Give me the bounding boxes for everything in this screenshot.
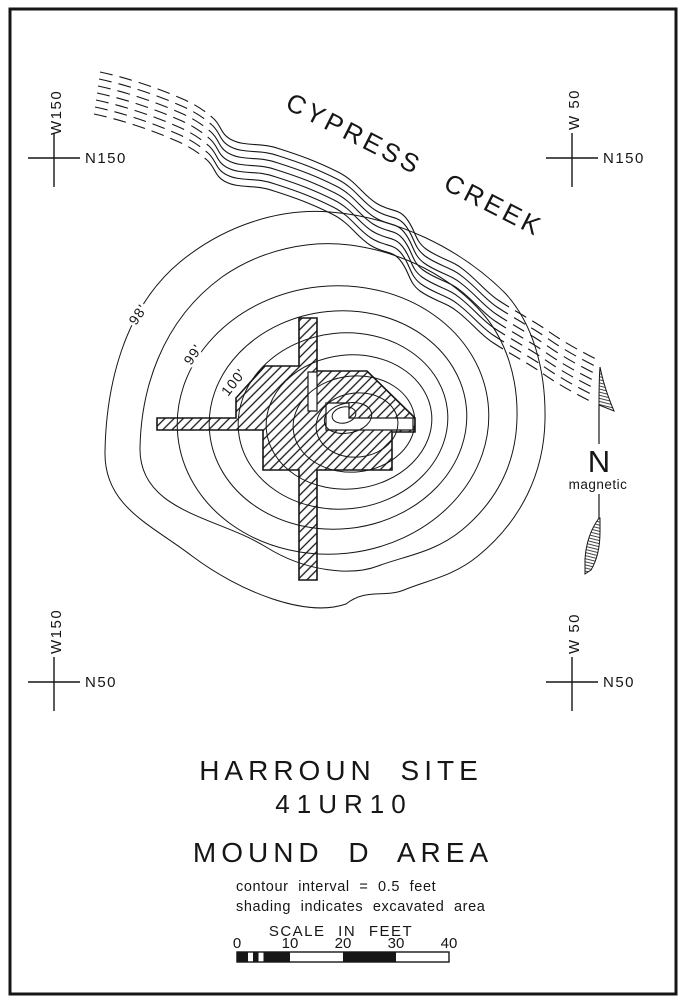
grid-cross-icon bbox=[28, 657, 80, 711]
scale-tick-40: 40 bbox=[441, 935, 458, 952]
shading-note: shading indicates excavated area bbox=[236, 899, 486, 915]
grid-label-west: W 50 bbox=[566, 613, 583, 654]
map-canvas: CYPRESS CREEK 98' 99' 100' W150 N150 W 5… bbox=[0, 0, 680, 999]
grid-label-west: W150 bbox=[48, 609, 65, 654]
north-arrow: N magnetic bbox=[569, 367, 628, 574]
grid-marker-nw: W150 N150 bbox=[28, 90, 127, 187]
scale-tick-10: 10 bbox=[282, 935, 299, 952]
scale-tick-0: 0 bbox=[233, 935, 241, 952]
scale-bar-segments bbox=[237, 952, 449, 962]
site-title: HARROUN SITE bbox=[199, 755, 483, 786]
contour-label-99: 99' bbox=[180, 341, 205, 368]
scale-tick-20: 20 bbox=[335, 935, 352, 952]
grid-label-north: N150 bbox=[603, 150, 645, 167]
grid-marker-ne: W 50 N150 bbox=[546, 89, 645, 187]
grid-label-north: N50 bbox=[85, 674, 117, 691]
scale-bar: SCALE IN FEET 0 10 20 30 40 bbox=[233, 923, 458, 962]
grid-marker-sw: W150 N50 bbox=[28, 609, 117, 711]
grid-label-north: N50 bbox=[603, 674, 635, 691]
site-trinomial: 41UR10 bbox=[275, 789, 412, 819]
grid-label-west: W150 bbox=[48, 90, 65, 135]
contour-label-98: 98' bbox=[125, 301, 150, 328]
grid-label-north: N150 bbox=[85, 150, 127, 167]
grid-cross-icon bbox=[546, 133, 598, 187]
grid-marker-se: W 50 N50 bbox=[546, 613, 635, 711]
north-sublabel: magnetic bbox=[569, 477, 628, 492]
scale-tick-30: 30 bbox=[388, 935, 405, 952]
title-block: HARROUN SITE 41UR10 MOUND D AREA contour… bbox=[193, 755, 493, 915]
north-arrow-tail-icon bbox=[585, 518, 600, 574]
north-arrow-head-icon bbox=[599, 367, 614, 411]
creek-line bbox=[94, 114, 592, 402]
site-map-figure: CYPRESS CREEK 98' 99' 100' W150 N150 W 5… bbox=[0, 0, 680, 999]
grid-label-west: W 50 bbox=[566, 89, 583, 130]
contour-interval-note: contour interval = 0.5 feet bbox=[236, 879, 436, 895]
grid-cross-icon bbox=[28, 133, 80, 187]
unexcavated-island bbox=[308, 372, 317, 411]
creek-line bbox=[95, 107, 593, 395]
grid-cross-icon bbox=[546, 657, 598, 711]
map-subtitle: MOUND D AREA bbox=[193, 837, 493, 868]
north-letter: N bbox=[588, 444, 610, 479]
